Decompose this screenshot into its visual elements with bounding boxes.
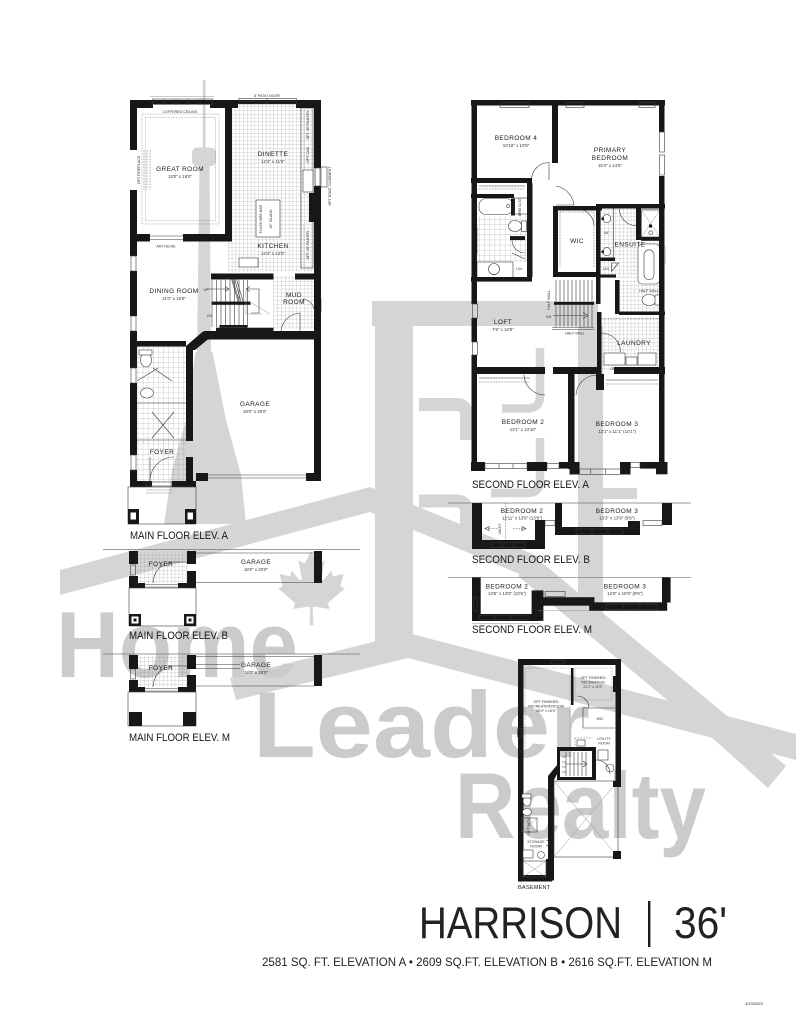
svg-text:OPT BSMT CASEMENT: OPT BSMT CASEMENT <box>328 166 332 206</box>
svg-text:13'0" x 18'0": 13'0" x 18'0" <box>168 174 193 179</box>
svg-text:ART NICHE: ART NICHE <box>156 245 176 249</box>
svg-text:OPT FINISHED: OPT FINISHED <box>533 700 558 704</box>
svg-text:STORAGE: STORAGE <box>527 840 545 844</box>
svg-text:DN: DN <box>546 315 552 319</box>
svg-text:OPT 48" PANTRY: OPT 48" PANTRY <box>306 110 310 139</box>
svg-text:OPT 48" PANTRY: OPT 48" PANTRY <box>306 230 310 259</box>
svg-text:Realty: Realty <box>455 753 706 858</box>
svg-text:13'3" x 13'9" (9'9"): 13'3" x 13'9" (9'9") <box>599 516 635 521</box>
svg-text:21'1" x 11'9": 21'1" x 11'9" <box>583 685 603 689</box>
svg-text:BRM CLST: BRM CLST <box>518 197 522 216</box>
svg-text:HALF WALL: HALF WALL <box>547 290 551 310</box>
svg-text:18'0" x 20'0": 18'0" x 20'0" <box>244 567 269 572</box>
svg-text:MAIN FLOOR ELEV. A: MAIN FLOOR ELEV. A <box>130 530 229 542</box>
svg-text:RECREATION: RECREATION <box>581 681 605 685</box>
svg-text:OPT FINISHED: OPT FINISHED <box>580 676 605 680</box>
svg-text:SECOND FLOOR ELEV. B: SECOND FLOOR ELEV. B <box>472 554 590 566</box>
svg-text:BEDROOM 2: BEDROOM 2 <box>502 419 545 426</box>
svg-text:BEDROOM 2: BEDROOM 2 <box>486 584 529 591</box>
svg-text:48" ISLAND: 48" ISLAND <box>269 209 273 229</box>
svg-text:KITCHEN: KITCHEN <box>257 243 288 250</box>
svg-text:DINING ROOM: DINING ROOM <box>149 288 198 295</box>
svg-text:FOYER: FOYER <box>149 561 173 568</box>
svg-text:HARRISON: HARRISON <box>419 899 622 948</box>
svg-text:OPT CAB: OPT CAB <box>306 147 310 163</box>
svg-text:BEDROOM 4: BEDROOM 4 <box>495 135 538 142</box>
svg-text:4/13/2022: 4/13/2022 <box>745 1001 764 1006</box>
svg-text:11'0" x 15'0": 11'0" x 15'0" <box>162 296 186 301</box>
svg-text:GARAGE: GARAGE <box>241 662 271 669</box>
svg-text:VAULT: VAULT <box>498 523 502 535</box>
svg-text:OPT BATH: OPT BATH <box>527 817 531 835</box>
svg-text:BEDROOM 3: BEDROOM 3 <box>596 421 639 428</box>
svg-text:GARAGE: GARAGE <box>241 559 271 566</box>
svg-text:LIN: LIN <box>603 267 609 271</box>
svg-text:BEDROOM: BEDROOM <box>592 155 628 162</box>
svg-text:RECREATION ROOM: RECREATION ROOM <box>528 705 563 709</box>
svg-text:MUD: MUD <box>286 292 302 299</box>
svg-text:18'0" x 20'0": 18'0" x 20'0" <box>243 409 268 414</box>
svg-text:FOYER: FOYER <box>149 665 173 672</box>
svg-text:ENSUITE: ENSUITE <box>615 242 646 249</box>
svg-text:2581 SQ. FT. ELEVATION A • 260: 2581 SQ. FT. ELEVATION A • 2609 SQ.FT. E… <box>262 955 712 969</box>
svg-text:ROOM: ROOM <box>530 845 541 849</box>
svg-text:LOFT: LOFT <box>494 319 512 326</box>
svg-text:GARAGE: GARAGE <box>240 401 270 408</box>
svg-text:FLUSH BRK BAR: FLUSH BRK BAR <box>259 204 263 233</box>
svg-text:UP: UP <box>204 288 210 292</box>
svg-text:PRIMARY: PRIMARY <box>594 147 627 154</box>
svg-text:13'5" x 13'6" (10'6"): 13'5" x 13'6" (10'6") <box>488 591 526 596</box>
svg-text:MAIN FLOOR ELEV. M: MAIN FLOOR ELEV. M <box>129 732 230 744</box>
svg-text:FOYER: FOYER <box>150 449 174 456</box>
svg-text:HALF WALL: HALF WALL <box>565 332 585 336</box>
svg-text:12'4" x 11'6": 12'4" x 11'6" <box>261 159 285 164</box>
svg-text:MAIN FLOOR ELEV. B: MAIN FLOOR ELEV. B <box>129 630 228 642</box>
svg-text:WIC: WIC <box>570 238 584 245</box>
svg-text:BASEMENT: BASEMENT <box>518 885 551 891</box>
svg-text:7'6" x 12'9": 7'6" x 12'9" <box>492 327 514 332</box>
svg-text:UTILITY: UTILITY <box>597 737 611 741</box>
svg-text:WIC: WIC <box>597 717 604 721</box>
svg-text:HALF WALL: HALF WALL <box>639 289 659 293</box>
svg-text:64": 64" <box>604 231 610 235</box>
svg-text:12'9" x 10'9" (9'9"): 12'9" x 10'9" (9'9") <box>607 591 643 596</box>
svg-text:12'1" x 11'1" (10'1"): 12'1" x 11'1" (10'1") <box>598 429 636 434</box>
svg-text:26'9" x 15'9": 26'9" x 15'9" <box>536 709 556 713</box>
svg-text:18'0" x 20'0": 18'0" x 20'0" <box>244 670 269 675</box>
svg-text:10'10" x 10'9": 10'10" x 10'9" <box>503 143 530 148</box>
svg-text:COFFERED CEILING: COFFERED CEILING <box>162 110 197 114</box>
svg-text:ROOM: ROOM <box>283 299 305 306</box>
svg-text:13'1" x 13'10": 13'1" x 13'10" <box>510 427 537 432</box>
svg-text:BEDROOM 2: BEDROOM 2 <box>501 508 544 515</box>
svg-text:SECOND FLOOR ELEV. M: SECOND FLOOR ELEV. M <box>472 624 592 636</box>
svg-text:12'11" x 13'6" (13'6"): 12'11" x 13'6" (13'6") <box>502 516 543 521</box>
svg-text:ROOM: ROOM <box>598 742 609 746</box>
svg-text:GREAT ROOM: GREAT ROOM <box>156 166 204 173</box>
svg-text:12'4" x 12'0": 12'4" x 12'0" <box>261 251 286 256</box>
svg-text:LIN: LIN <box>516 267 522 271</box>
svg-text:BEDROOM 3: BEDROOM 3 <box>604 584 647 591</box>
svg-text:8' PATIO DOOR: 8' PATIO DOOR <box>254 94 280 98</box>
svg-text:36': 36' <box>674 899 727 948</box>
svg-text:OPT FIREPLACE: OPT FIREPLACE <box>137 155 141 184</box>
svg-text:DN: DN <box>207 314 213 318</box>
svg-text:15'4" x 14'6": 15'4" x 14'6" <box>598 163 623 168</box>
svg-text:BEDROOM 3: BEDROOM 3 <box>596 508 639 515</box>
svg-text:SECOND FLOOR ELEV. A: SECOND FLOOR ELEV. A <box>472 479 590 491</box>
svg-text:DINETTE: DINETTE <box>258 151 289 158</box>
svg-text:LAUNDRY: LAUNDRY <box>617 340 651 347</box>
